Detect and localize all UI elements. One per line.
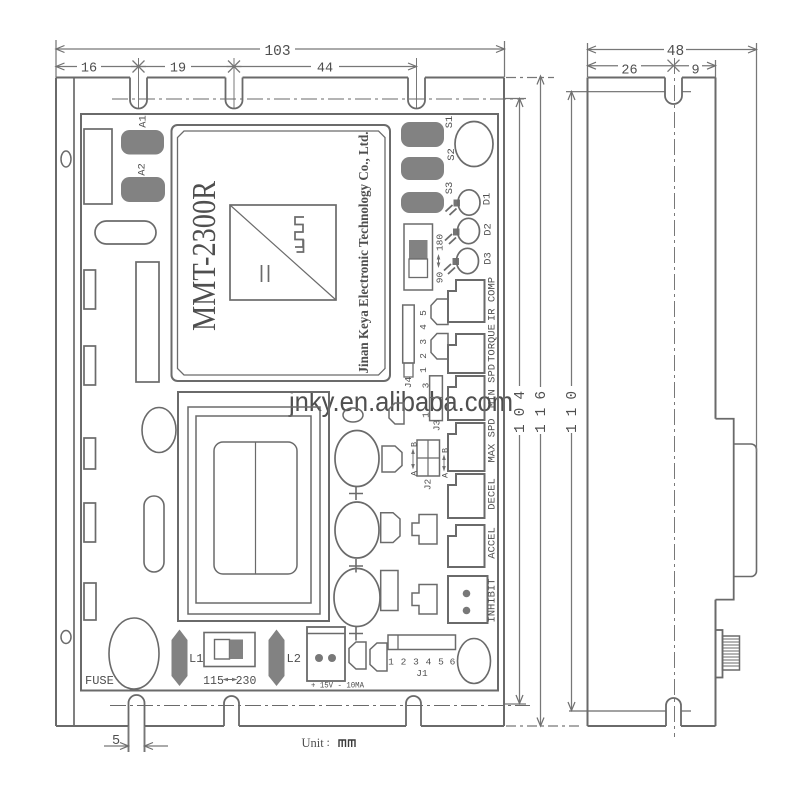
svg-text:MMT-2300R: MMT-2300R [186,181,223,331]
svg-text:103: 103 [264,44,290,60]
svg-text:S1: S1 [444,116,456,129]
svg-text:IR COMP: IR COMP [487,277,499,321]
svg-text:230: 230 [236,675,257,688]
svg-text:jnky.en.alibaba.com: jnky.en.alibaba.com [288,386,513,417]
svg-text:19: 19 [170,62,186,77]
svg-text:L2: L2 [287,652,301,666]
svg-text:90: 90 [435,272,446,284]
svg-text:ACCEL: ACCEL [487,527,499,559]
svg-text:D1: D1 [482,193,494,206]
svg-text:MAX SPD: MAX SPD [487,418,499,462]
svg-text:L1: L1 [189,652,203,666]
svg-text:S3: S3 [444,182,456,195]
svg-text:3: 3 [418,339,429,345]
svg-text:4: 4 [426,657,432,668]
svg-text:A1: A1 [138,115,150,128]
svg-text:3: 3 [413,657,419,668]
svg-text:180: 180 [435,234,446,251]
svg-text:2: 2 [418,353,429,359]
svg-text:INHIBIT: INHIBIT [487,578,499,622]
svg-text:110: 110 [565,383,581,433]
svg-text:Jinan Keya Electronic Technolo: Jinan Keya Electronic Technology Co., Lt… [356,132,371,374]
svg-text:4: 4 [418,324,429,330]
svg-text:9: 9 [691,64,699,79]
svg-text:1: 1 [421,412,432,418]
svg-text:16: 16 [81,62,97,77]
svg-text:TORQUE: TORQUE [487,324,499,362]
svg-text:S2: S2 [446,148,458,161]
svg-text:5: 5 [112,734,120,749]
svg-text:FUSE: FUSE [85,674,114,688]
svg-text:J3: J3 [432,420,443,432]
svg-text:5: 5 [438,657,444,668]
svg-text:D2: D2 [483,223,495,236]
svg-text:115: 115 [203,675,224,688]
svg-text:3: 3 [421,382,432,388]
svg-text:2: 2 [401,657,407,668]
svg-text:MIN SPD: MIN SPD [487,364,499,408]
svg-text:44: 44 [317,62,333,77]
svg-text:J1: J1 [416,668,428,679]
svg-text:6: 6 [450,657,456,668]
svg-text:+ 15V - 10MA: + 15V - 10MA [311,682,364,691]
svg-text:A2: A2 [137,163,149,176]
svg-text::: : [327,735,330,749]
svg-text:D3: D3 [483,252,495,265]
svg-text:116: 116 [534,383,550,433]
svg-text:1: 1 [388,657,394,668]
svg-text:J2: J2 [423,479,434,491]
svg-text:J4: J4 [403,377,414,389]
svg-text:5: 5 [418,310,429,316]
svg-text:104: 104 [513,383,529,433]
svg-text:Unit: Unit [302,736,325,750]
svg-text:A: A [441,472,451,478]
svg-text:26: 26 [621,64,637,79]
svg-text:48: 48 [667,44,684,60]
svg-text:B: B [410,442,420,447]
svg-text:A: A [410,470,420,476]
svg-text:1: 1 [418,367,429,373]
svg-text:DECEL: DECEL [487,478,499,510]
svg-text:B: B [441,448,451,453]
